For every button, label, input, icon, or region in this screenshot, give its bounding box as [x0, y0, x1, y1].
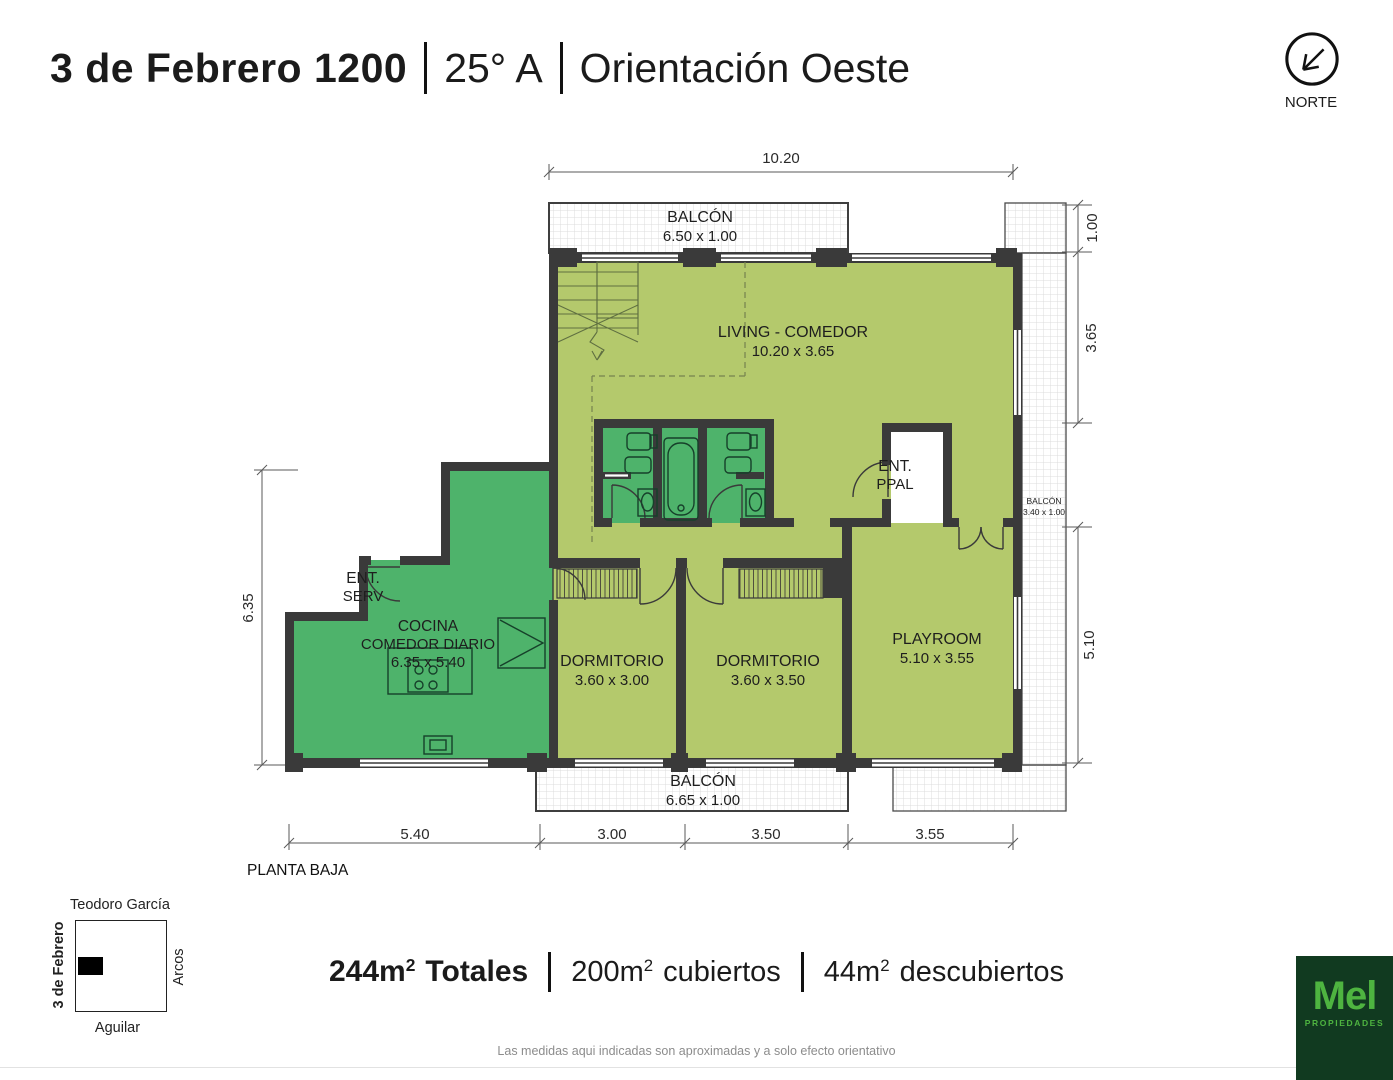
summary-separator	[801, 952, 804, 992]
area-summary: 244m2 Totales 200m2 cubiertos 44m2 descu…	[0, 952, 1393, 992]
service-entrance-label: ENT. SERV	[323, 570, 403, 606]
logo-brand: Mel	[1313, 976, 1377, 1016]
kitchen-label: COCINA COMEDOR DIARIO 6.35 x 5.40	[328, 618, 528, 672]
floorplan-page: 3 de Febrero 1200 25° A Orientación Oest…	[0, 0, 1393, 1080]
unit-label: 25° A	[444, 45, 542, 92]
dim-top: 10.20	[731, 150, 831, 167]
header-separator	[424, 42, 427, 94]
summary-separator	[548, 952, 551, 992]
floorplan-drawing	[0, 0, 1393, 1080]
covered-area: 200m2 cubiertos	[571, 956, 781, 989]
dim-bottom-2: 3.00	[562, 826, 662, 843]
uncovered-area: 44m2 descubiertos	[824, 956, 1064, 989]
north-label: NORTE	[1276, 94, 1346, 111]
dim-bottom-3: 3.50	[716, 826, 816, 843]
page-title: 3 de Febrero 1200	[50, 45, 407, 92]
orientation-label: Orientación Oeste	[580, 45, 910, 92]
dim-bottom-4: 3.55	[880, 826, 980, 843]
header: 3 de Febrero 1200 25° A Orientación Oest…	[50, 40, 910, 96]
balcony-top-label: BALCÓN 6.50 x 1.00	[600, 209, 800, 246]
living-label: LIVING - COMEDOR 10.20 x 3.65	[693, 324, 893, 361]
dim-bottom-1: 5.40	[365, 826, 465, 843]
header-separator	[560, 42, 563, 94]
dim-right-bottom: 5.10	[1076, 617, 1102, 673]
balcony-right-label: BALCÓN 3.40 x 1.00	[1021, 496, 1067, 517]
logo-subtitle: PROPIEDADES	[1305, 1018, 1384, 1028]
north-compass-icon	[1283, 30, 1341, 88]
bedroom2-label: DORMITORIO 3.60 x 3.50	[688, 653, 848, 690]
balcony-bottom-label: BALCÓN 6.65 x 1.00	[603, 773, 803, 810]
dim-right-top: 1.00	[1079, 200, 1105, 256]
dim-left: 6.35	[235, 580, 261, 636]
dim-right-mid: 3.65	[1078, 310, 1104, 366]
footer-divider	[0, 1067, 1393, 1068]
street-north: Teodoro García	[45, 897, 195, 913]
bedroom1-label: DORMITORIO 3.60 x 3.00	[532, 653, 692, 690]
agency-logo: Mel PROPIEDADES	[1296, 956, 1393, 1080]
main-entrance-label: ENT. PPAL	[855, 458, 935, 494]
street-south: Aguilar	[60, 1020, 175, 1036]
disclaimer-text: Las medidas aqui indicadas son aproximad…	[0, 1044, 1393, 1058]
floor-label: PLANTA BAJA	[247, 862, 348, 880]
playroom-label: PLAYROOM 5.10 x 3.55	[857, 631, 1017, 668]
total-area: 244m2 Totales	[329, 955, 528, 989]
